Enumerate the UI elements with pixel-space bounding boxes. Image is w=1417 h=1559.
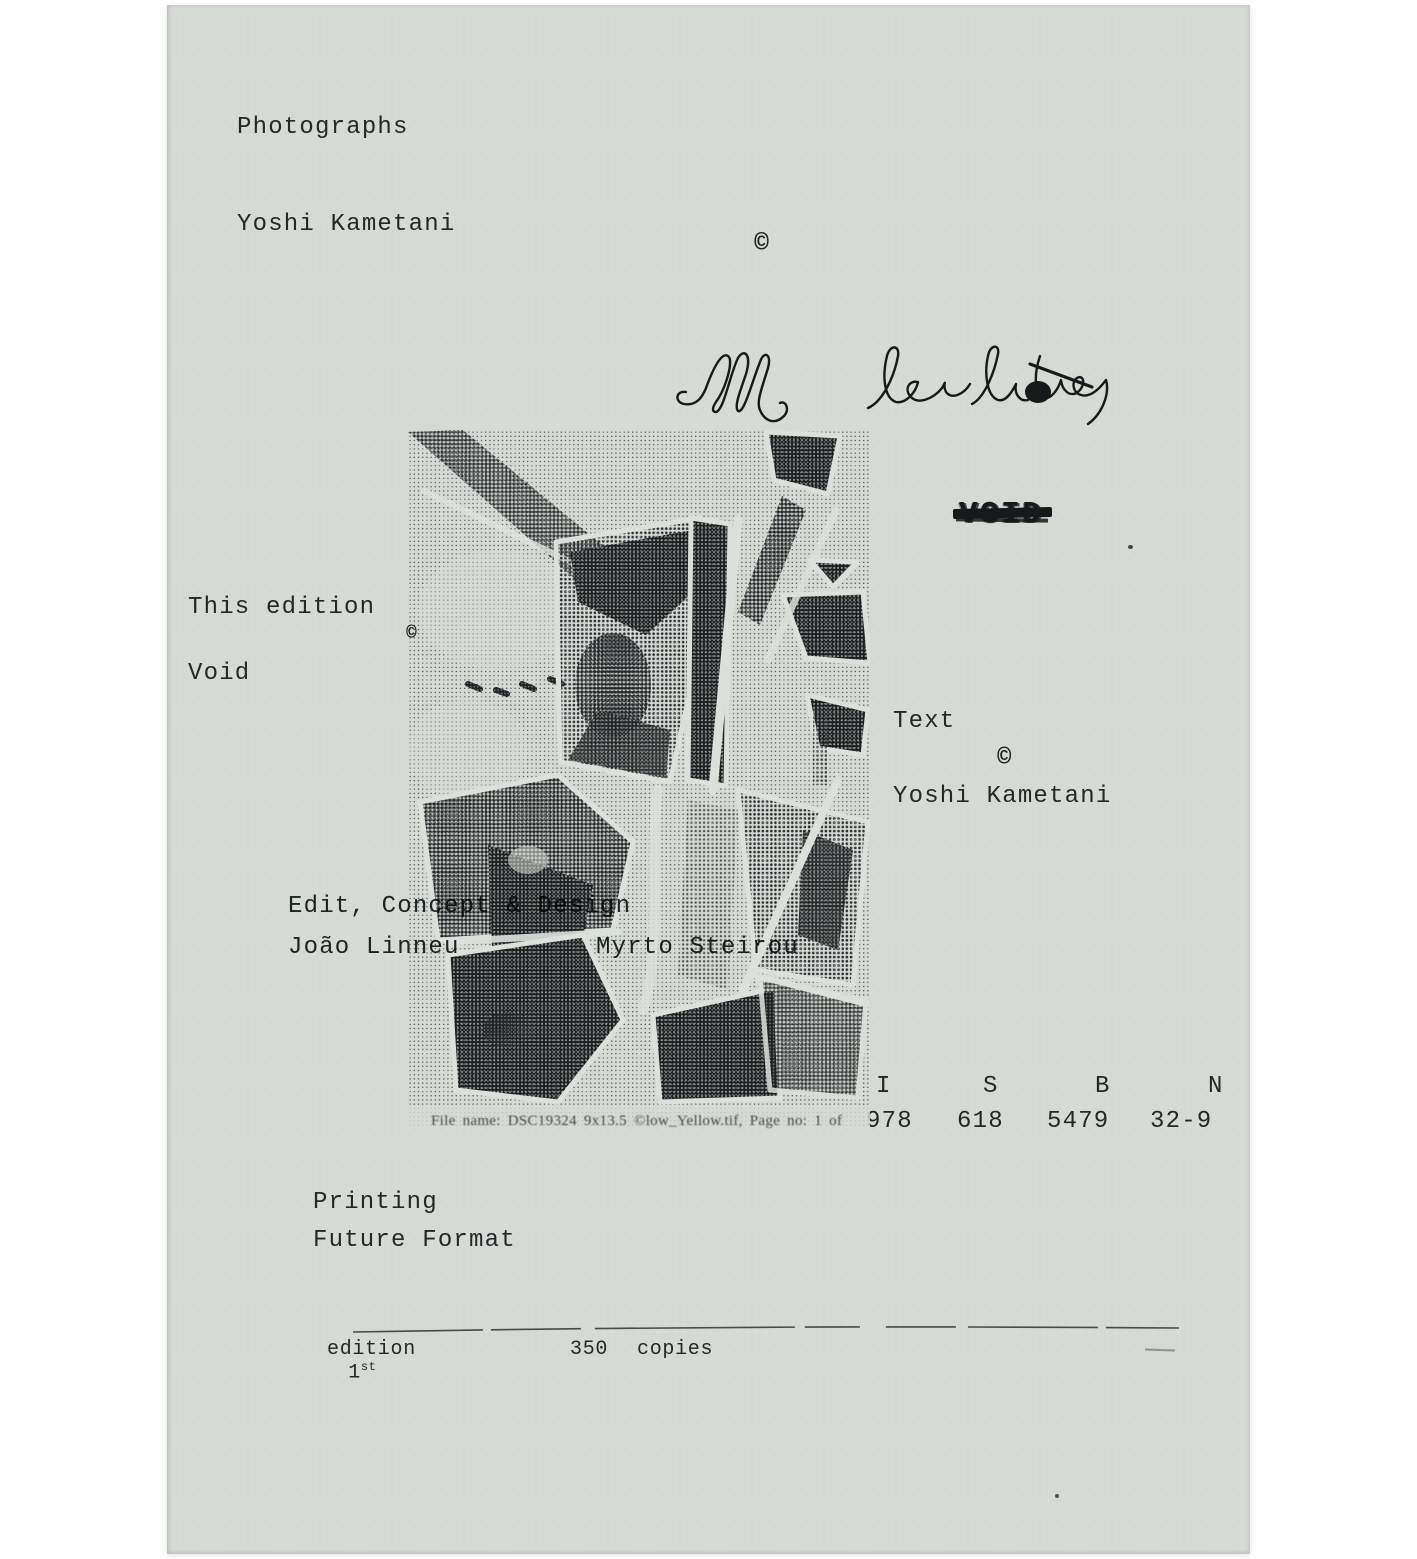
- scan-background: Photographs Yoshi Kametani ©: [0, 0, 1417, 1559]
- image-file-caption: File name: DSC19324 9x13.5 ©low_Yellow.t…: [431, 1113, 1051, 1129]
- isbn-letter-s: S: [983, 1073, 999, 1101]
- thin-rule-line: [351, 1321, 1181, 1337]
- printer-name: Future Format: [313, 1227, 516, 1255]
- edition-number-suffix: st: [361, 1360, 376, 1374]
- halftone-collage-image: [408, 430, 870, 1128]
- edition-publisher: Void: [188, 660, 250, 688]
- isbn-letter-i: I: [876, 1073, 892, 1101]
- photographs-label: Photographs: [237, 114, 409, 142]
- designer-left: João Linneu: [288, 934, 460, 962]
- isbn-group-3: 5479: [1047, 1108, 1109, 1136]
- halftone-collage-svg: [408, 430, 870, 1128]
- handwritten-note: [672, 340, 1122, 455]
- edition-word: edition: [327, 1338, 416, 1361]
- copyright-icon: ©: [406, 624, 417, 644]
- designer-right: Myrto Steirou: [596, 934, 799, 962]
- copies-word: copies: [637, 1338, 713, 1361]
- design-credit-line: Edit, Concept & Design: [288, 893, 631, 921]
- this-edition-label: This edition: [188, 594, 375, 622]
- photographer-name: Yoshi Kametani: [237, 211, 455, 239]
- colophon-page: Photographs Yoshi Kametani ©: [167, 5, 1250, 1554]
- ink-speck: [1055, 1494, 1059, 1498]
- isbn-letter-b: B: [1095, 1073, 1111, 1101]
- printing-label: Printing: [313, 1189, 438, 1217]
- copyright-icon: ©: [754, 229, 769, 258]
- ink-blob: [1025, 381, 1051, 403]
- text-author: Yoshi Kametani: [893, 783, 1111, 811]
- text-label: Text: [893, 708, 955, 736]
- isbn-letter-n: N: [1208, 1073, 1224, 1101]
- ink-speck: [1128, 545, 1133, 549]
- copyright-icon: ©: [997, 745, 1011, 772]
- void-stamp-struck: VOID: [959, 497, 1043, 532]
- isbn-group-4: 32-9: [1150, 1108, 1212, 1136]
- rule-fragment: [1145, 1348, 1175, 1351]
- copies-count: 350: [570, 1338, 608, 1361]
- edition-number-digit: 1: [348, 1362, 361, 1385]
